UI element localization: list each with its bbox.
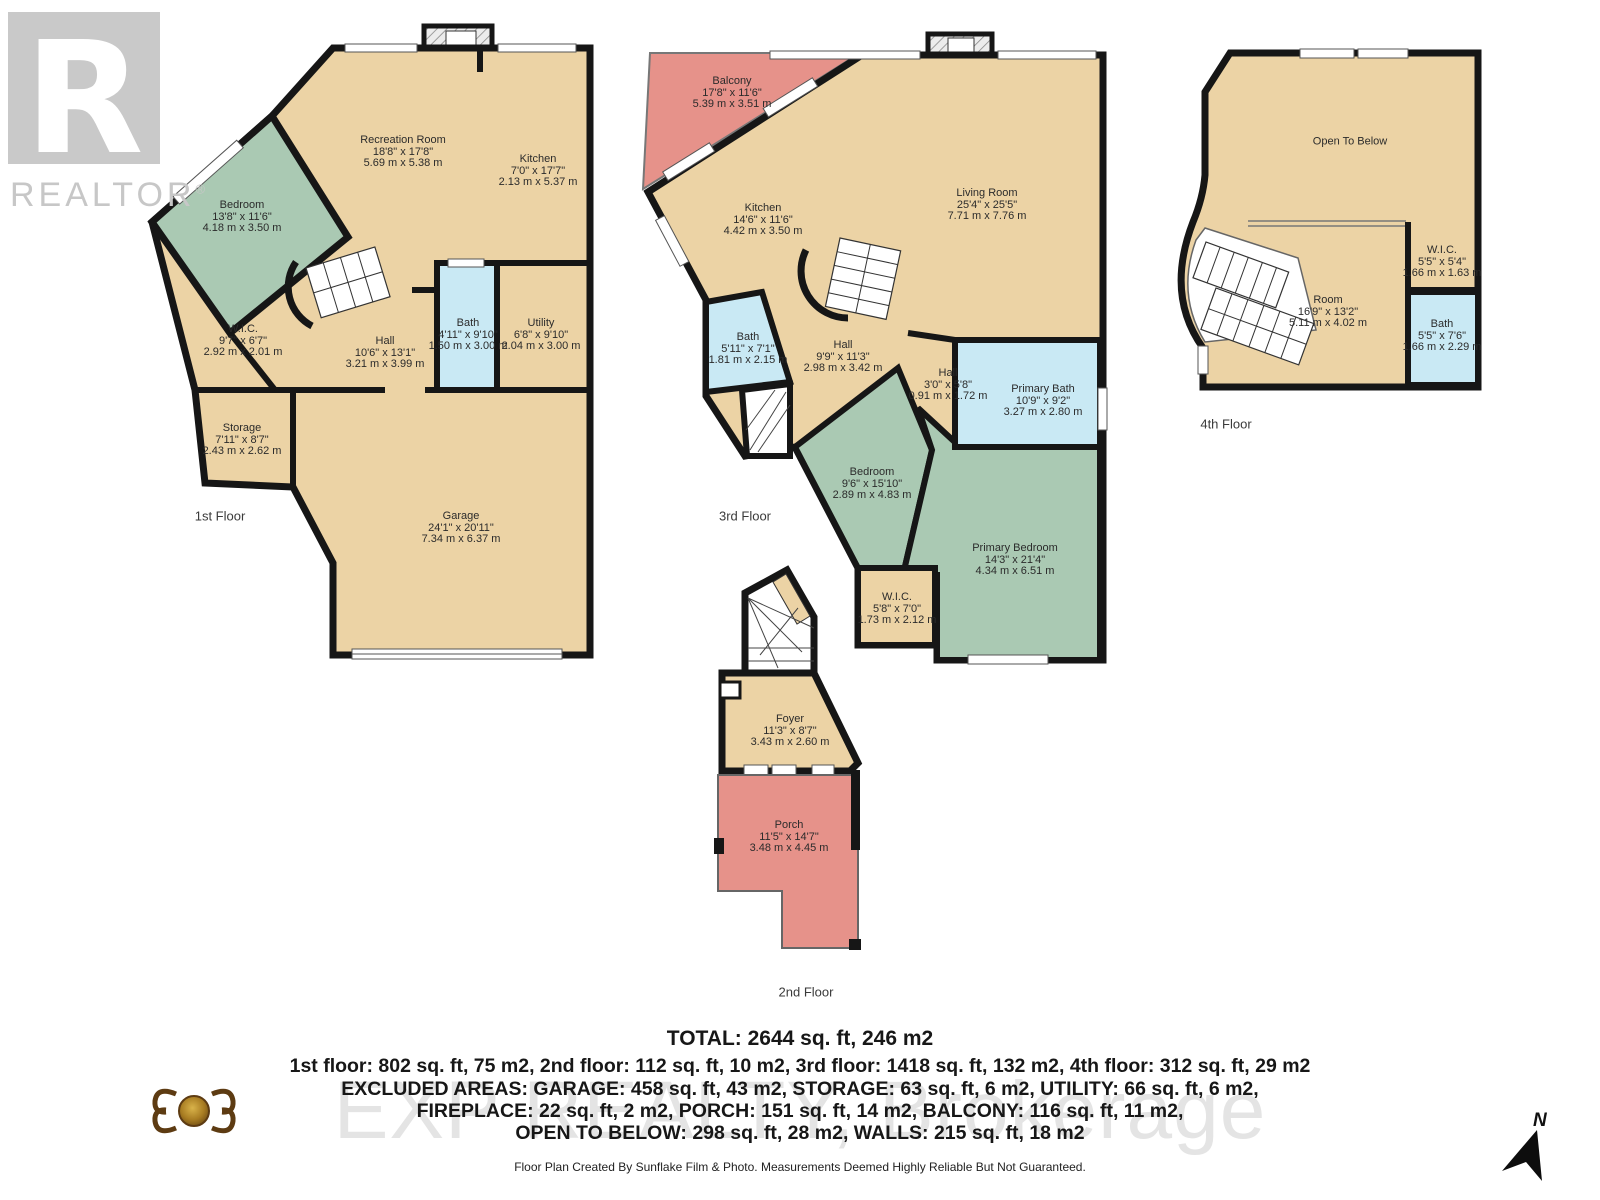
summary-excluded-1: EXCLUDED AREAS: GARAGE: 458 sq. ft, 43 m… (0, 1078, 1600, 1101)
caption-3rd-floor: 3rd Floor (719, 509, 771, 524)
summary-excluded-3: OPEN TO BELOW: 298 sq. ft, 28 m2, WALLS:… (0, 1122, 1600, 1145)
summary-credit: Floor Plan Created By Sunflake Film & Ph… (0, 1160, 1600, 1174)
floorplan-page: R (0, 0, 1600, 1200)
floor2-closet (720, 682, 740, 698)
room-label-garage: Garage 24'1" x 20'11" 7.34 m x 6.37 m (422, 511, 501, 546)
room-label-hall-1st: Hall 10'6" x 13'1" 3.21 m x 3.99 m (346, 336, 425, 371)
room-label-wic-4th: W.I.C. 5'5" x 5'4" 1.66 m x 1.63 m (1403, 245, 1482, 280)
room-label-open-to-below: Open To Below (1313, 136, 1387, 148)
floorplan-2nd-floor (714, 570, 861, 950)
floor2-porch-room (718, 775, 858, 948)
room-label-storage: Storage 7'11" x 8'7" 2.43 m x 2.62 m (203, 423, 282, 458)
caption-4th-floor: 4th Floor (1200, 417, 1251, 432)
floor3-lower-stairs-icon (742, 384, 790, 456)
room-label-porch: Porch 11'5" x 14'7" 3.48 m x 4.45 m (750, 820, 829, 855)
room-label-kitchen-1st: Kitchen 7'0" x 17'7" 2.13 m x 5.37 m (499, 154, 578, 189)
room-label-primary-bath: Primary Bath 10'9" x 9'2" 3.27 m x 2.80 … (1004, 384, 1083, 419)
room-label-utility: Utility 6'8" x 9'10" 2.04 m x 3.00 m (502, 318, 581, 353)
floor2-doors (744, 765, 834, 775)
room-label-kitchen-3rd: Kitchen 14'6" x 11'6" 4.42 m x 3.50 m (724, 203, 803, 238)
floorplan-canvas: R (0, 0, 1600, 1200)
room-label-bath-4th: Bath 5'5" x 7'6" 1.66 m x 2.29 m (1403, 319, 1482, 354)
room-label-wic-3rd: W.I.C. 5'8" x 7'0" 1.73 m x 2.12 m (858, 592, 937, 627)
realtor-watermark: REALTOR® (10, 176, 205, 215)
room-label-foyer: Foyer 11'3" x 8'7" 3.43 m x 2.60 m (751, 714, 830, 749)
room-label-hall-small: Hall 3'0" x 5'8" 0.91 m x 1.72 m (909, 368, 988, 403)
room-label-primary-bedroom: Primary Bedroom 14'3" x 21'4" 4.34 m x 6… (972, 543, 1058, 578)
room-label-bath-3rd: Bath 5'11" x 7'1" 1.81 m x 2.15 m (709, 332, 788, 367)
room-label-bath-1st: Bath 4'11" x 9'10" 1.50 m x 3.00 m (429, 318, 508, 353)
room-label-bedroom-3rd: Bedroom 9'6" x 15'10" 2.89 m x 4.83 m (833, 467, 912, 502)
room-label-balcony: Balcony 17'8" x 11'6" 5.39 m x 3.51 m (693, 76, 772, 111)
room-label-hall-3rd: Hall 9'9" x 11'3" 2.98 m x 3.42 m (804, 340, 883, 375)
room-label-living-room: Living Room 25'4" x 25'5" 7.71 m x 7.76 … (948, 188, 1027, 223)
realtor-logo-icon: R (8, 8, 160, 189)
room-label-bedroom-1st: Bedroom 13'8" x 11'6" 4.18 m x 3.50 m (203, 200, 282, 235)
svg-text:R: R (24, 8, 143, 189)
room-label-wic-1st: W.I.C. 9'7" x 6'7" 2.92 m x 2.01 m (204, 324, 283, 359)
summary-excluded-2: FIREPLACE: 22 sq. ft, 2 m2, PORCH: 151 s… (0, 1100, 1600, 1123)
summary-total: TOTAL: 2644 sq. ft, 246 m2 (0, 1027, 1600, 1051)
room-label-recreation-room: Recreation Room 18'8" x 17'8" 5.69 m x 5… (360, 135, 446, 170)
room-label-room-4th: Room 16'9" x 13'2" 5.11 m x 4.02 m (1289, 295, 1367, 330)
caption-2nd-floor: 2nd Floor (779, 985, 834, 1000)
summary-floor-areas: 1st floor: 802 sq. ft, 75 m2, 2nd floor:… (0, 1055, 1600, 1078)
caption-1st-floor: 1st Floor (195, 509, 246, 524)
